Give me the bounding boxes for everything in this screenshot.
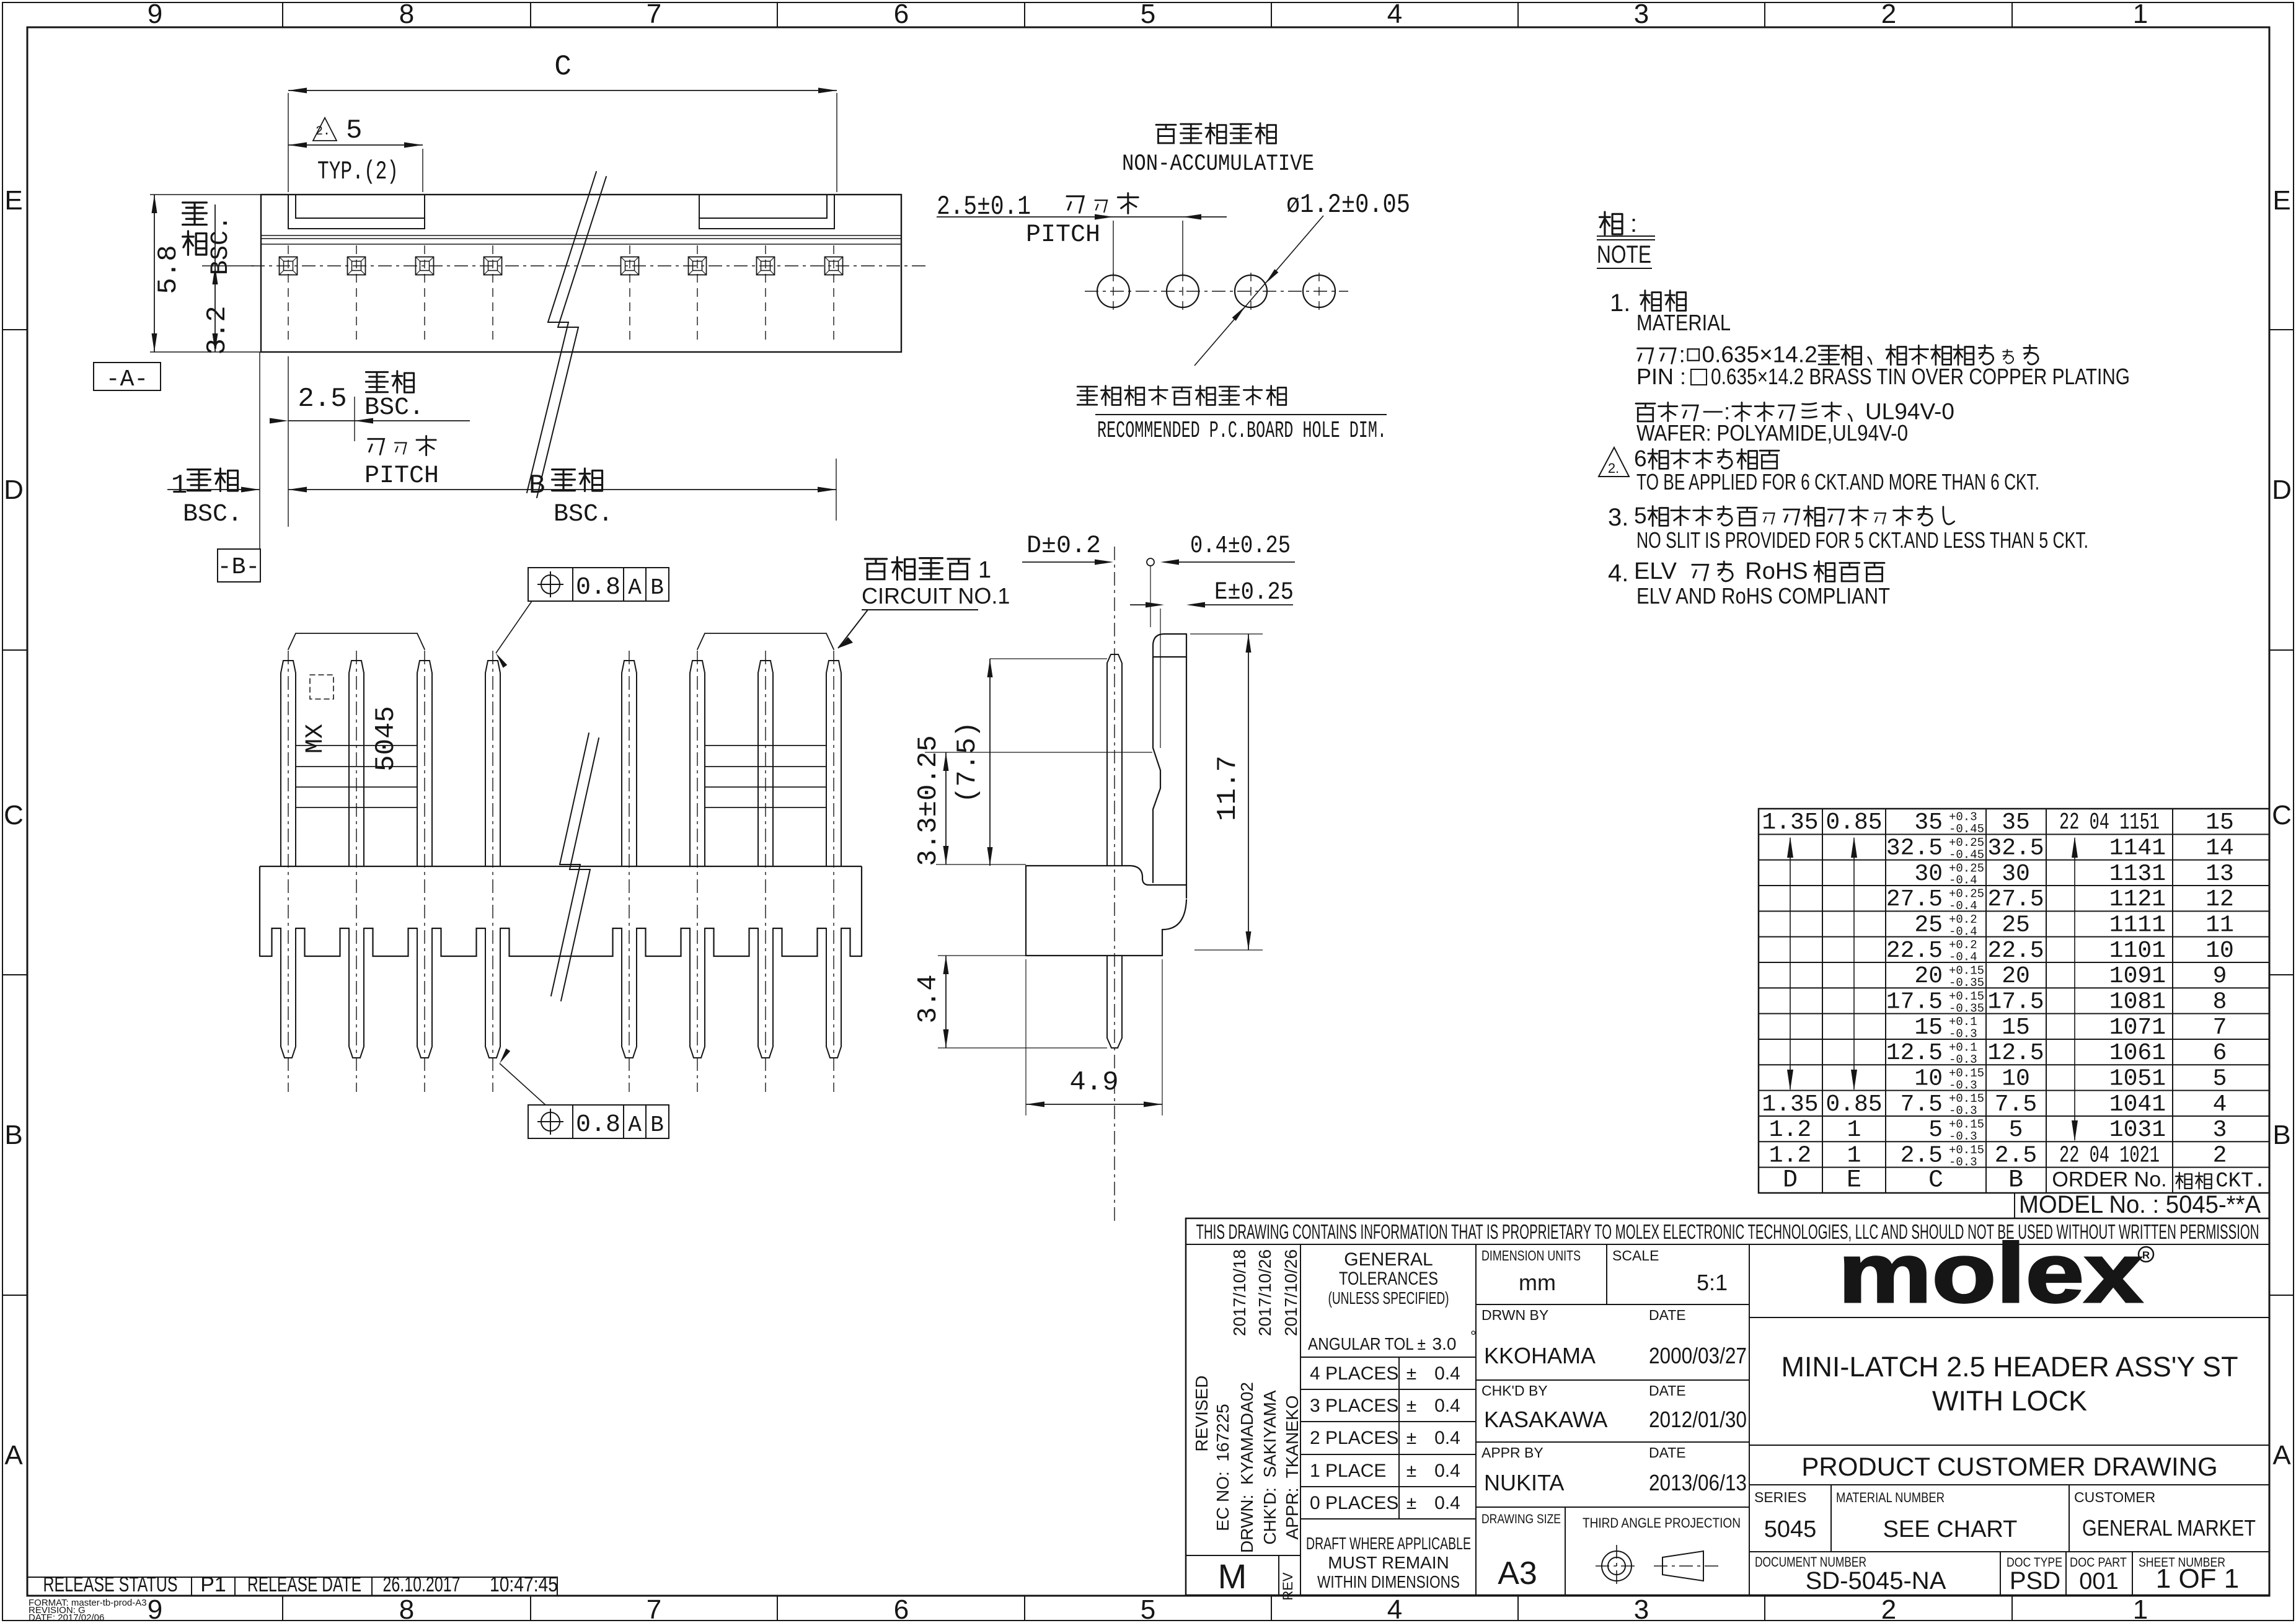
- svg-text:1111: 1111: [2109, 912, 2166, 939]
- svg-text:1071: 1071: [2109, 1014, 2166, 1041]
- svg-text:3.: 3.: [1608, 504, 1628, 531]
- svg-text:DATE: DATE: [1649, 1307, 1686, 1323]
- svg-text:NON-ACCUMULATIVE: NON-ACCUMULATIVE: [1122, 151, 1314, 177]
- svg-text:6: 6: [1634, 446, 1647, 471]
- svg-text:M: M: [1218, 1557, 1247, 1596]
- svg-text:8: 8: [399, 0, 414, 29]
- svg-text::: :: [1630, 210, 1637, 237]
- svg-text:2.5±0.1: 2.5±0.1: [937, 191, 1031, 222]
- svg-text:5: 5: [1634, 503, 1647, 528]
- svg-text:6: 6: [2213, 1040, 2227, 1067]
- svg-text:3 PLACES: 3 PLACES: [1310, 1396, 1398, 1416]
- svg-text:P1: P1: [200, 1573, 226, 1596]
- svg-text:17.5: 17.5: [1987, 989, 2044, 1016]
- svg-text:REVISED: REVISED: [1192, 1376, 1211, 1452]
- svg-text:WITHIN DIMENSIONS: WITHIN DIMENSIONS: [1317, 1572, 1460, 1591]
- svg-text:MATERIAL NUMBER: MATERIAL NUMBER: [1836, 1490, 1945, 1505]
- svg-text:9: 9: [148, 1594, 162, 1623]
- svg-text:-0.4: -0.4: [1949, 951, 1977, 964]
- svg-text:CHK'D BY: CHK'D BY: [1481, 1383, 1548, 1399]
- svg-text:±: ±: [1406, 1461, 1416, 1481]
- svg-text:3.3±0.25: 3.3±0.25: [913, 735, 944, 866]
- svg-text:KASAKAWA: KASAKAWA: [1484, 1407, 1607, 1432]
- svg-text:1 OF 1: 1 OF 1: [2156, 1564, 2240, 1594]
- svg-text:2 PLACES: 2 PLACES: [1310, 1428, 1398, 1448]
- svg-text:DIMENSION UNITS: DIMENSION UNITS: [1481, 1247, 1581, 1264]
- svg-text:B: B: [4, 1120, 22, 1150]
- svg-text:BSC.: BSC.: [183, 501, 242, 529]
- svg-text:DRWN: KYAMADA02: DRWN: KYAMADA02: [1237, 1382, 1256, 1553]
- svg-text:1: 1: [1847, 1117, 1861, 1143]
- svg-text:THIRD ANGLE PROJECTION: THIRD ANGLE PROJECTION: [1583, 1515, 1741, 1531]
- svg-text:APPR: TKANEKO: APPR: TKANEKO: [1283, 1396, 1302, 1540]
- svg-text:PITCH: PITCH: [1026, 221, 1100, 249]
- svg-text:B: B: [650, 575, 664, 600]
- svg-text:2: 2: [1881, 0, 1896, 29]
- svg-text:mm: mm: [1519, 1270, 1556, 1295]
- svg-text:25: 25: [1914, 912, 1943, 939]
- svg-text:6: 6: [894, 1594, 909, 1623]
- svg-text:RoHS: RoHS: [1739, 558, 1814, 584]
- svg-text:30: 30: [1914, 861, 1943, 887]
- svg-text:10:47:45: 10:47:45: [490, 1573, 558, 1596]
- svg-text:4.9: 4.9: [1069, 1067, 1118, 1098]
- svg-text:32.5: 32.5: [1886, 835, 1943, 862]
- svg-text:5045: 5045: [1764, 1516, 1817, 1542]
- svg-text:11: 11: [2205, 912, 2234, 939]
- svg-text:(UNLESS SPECIFIED): (UNLESS SPECIFIED): [1328, 1288, 1449, 1308]
- svg-text:1: 1: [2133, 1594, 2148, 1623]
- svg-text:C: C: [2272, 800, 2292, 830]
- svg-text:-A-: -A-: [106, 366, 148, 393]
- svg-text:7.5: 7.5: [1995, 1091, 2037, 1118]
- svg-text:±: ±: [1406, 1363, 1416, 1384]
- svg-text:ELV: ELV: [1634, 558, 1684, 584]
- svg-text:-0.45: -0.45: [1949, 848, 1984, 861]
- svg-text:2.5: 2.5: [1995, 1143, 2037, 1169]
- svg-text:15: 15: [2205, 809, 2234, 836]
- svg-text:3.2: 3.2: [202, 306, 233, 354]
- svg-text:5: 5: [1141, 0, 1155, 29]
- svg-text:5: 5: [1141, 1594, 1155, 1623]
- svg-text:3: 3: [1634, 1594, 1649, 1623]
- svg-text:3.0: 3.0: [1433, 1334, 1457, 1353]
- svg-text:DRWN BY: DRWN BY: [1481, 1307, 1548, 1323]
- svg-text:MATERIAL: MATERIAL: [1636, 310, 1731, 335]
- svg-text:C: C: [1928, 1167, 1943, 1195]
- svg-text:ORDER No.: ORDER No.: [2052, 1168, 2166, 1192]
- svg-text:0.4: 0.4: [1434, 1493, 1460, 1513]
- svg-text:10: 10: [1914, 1066, 1943, 1093]
- svg-text:ø1.2±0.05: ø1.2±0.05: [1286, 190, 1410, 221]
- svg-text:0.4: 0.4: [1434, 1396, 1460, 1416]
- svg-text:A3: A3: [1498, 1555, 1537, 1591]
- svg-text:0.4: 0.4: [1434, 1363, 1460, 1384]
- svg-text:22 04 1021: 22 04 1021: [2059, 1143, 2160, 1169]
- svg-text:-0.3: -0.3: [1949, 1104, 1977, 1118]
- svg-text:-0.3: -0.3: [1949, 1155, 1977, 1169]
- svg-text:3: 3: [2213, 1117, 2227, 1143]
- svg-text:35: 35: [2002, 809, 2030, 836]
- svg-text:5: 5: [346, 115, 362, 146]
- svg-text:SEE CHART: SEE CHART: [1883, 1516, 2018, 1542]
- svg-text:0.8: 0.8: [576, 574, 620, 602]
- svg-text:1091: 1091: [2109, 963, 2166, 990]
- svg-text:1031: 1031: [2109, 1117, 2166, 1143]
- svg-text:2017/10/26: 2017/10/26: [1281, 1249, 1300, 1336]
- svg-text:GENERAL MARKET: GENERAL MARKET: [2082, 1515, 2256, 1541]
- svg-text:5: 5: [1928, 1117, 1943, 1143]
- svg-text:0.85: 0.85: [1826, 1091, 1882, 1118]
- svg-text:B: B: [529, 470, 545, 501]
- svg-text:27.5: 27.5: [1886, 886, 1943, 913]
- svg-text:RECOMMENDED P.C.BOARD HOLE DIM: RECOMMENDED P.C.BOARD HOLE DIM.: [1097, 418, 1387, 444]
- svg-text:1081: 1081: [2109, 989, 2166, 1016]
- svg-text:2.: 2.: [1608, 460, 1619, 476]
- svg-text:E: E: [2272, 185, 2290, 216]
- svg-text:-0.4: -0.4: [1949, 899, 1977, 913]
- svg-text:20: 20: [2002, 963, 2030, 990]
- svg-text:D: D: [1783, 1167, 1798, 1195]
- svg-text:6: 6: [894, 0, 909, 29]
- svg-text:2017/10/18: 2017/10/18: [1230, 1249, 1249, 1336]
- svg-text:20: 20: [1914, 963, 1943, 990]
- svg-text:3: 3: [1634, 0, 1649, 29]
- svg-text:2013/06/13: 2013/06/13: [1649, 1470, 1747, 1495]
- svg-text:C: C: [554, 51, 572, 83]
- svg-text:D±0.2: D±0.2: [1027, 532, 1101, 560]
- svg-text:1: 1: [1847, 1143, 1861, 1169]
- svg-text:3.4: 3.4: [913, 974, 944, 1023]
- svg-text:DRAFT WHERE APPLICABLE: DRAFT WHERE APPLICABLE: [1306, 1534, 1471, 1553]
- svg-text:PRODUCT CUSTOMER DRAWING: PRODUCT CUSTOMER DRAWING: [1801, 1452, 2217, 1481]
- svg-text:-0.35: -0.35: [1949, 976, 1984, 990]
- svg-text:±: ±: [1406, 1493, 1416, 1513]
- svg-text:2012/01/30: 2012/01/30: [1649, 1407, 1747, 1432]
- svg-text:1 PLACE: 1 PLACE: [1310, 1461, 1386, 1481]
- svg-text:4 PLACES: 4 PLACES: [1310, 1363, 1398, 1384]
- svg-text:molex: molex: [1838, 1226, 2142, 1320]
- svg-text:15: 15: [1914, 1014, 1943, 1041]
- svg-text:APPR BY: APPR BY: [1481, 1445, 1543, 1461]
- svg-text:2017/10/26: 2017/10/26: [1255, 1249, 1274, 1336]
- svg-text:MUST REMAIN: MUST REMAIN: [1328, 1553, 1449, 1572]
- svg-text:1.2: 1.2: [1769, 1117, 1811, 1143]
- svg-text:35: 35: [1914, 809, 1943, 836]
- svg-text:D: D: [4, 475, 24, 505]
- svg-text:±: ±: [1406, 1396, 1416, 1416]
- svg-text:A: A: [628, 1112, 642, 1138]
- svg-text:PSD: PSD: [2010, 1567, 2060, 1594]
- svg-text:MODEL No. : 5045-**A: MODEL No. : 5045-**A: [2019, 1191, 2261, 1218]
- svg-text:0.4±0.25: 0.4±0.25: [1190, 532, 1291, 560]
- svg-text:4: 4: [1387, 0, 1402, 29]
- svg-text:RELEASE STATUS: RELEASE STATUS: [43, 1573, 178, 1596]
- svg-text:1: 1: [978, 557, 991, 583]
- svg-text:12: 12: [2205, 886, 2234, 913]
- svg-text:ANGULAR TOL ±: ANGULAR TOL ±: [1308, 1334, 1426, 1353]
- svg-text:BSC.: BSC.: [364, 394, 424, 422]
- svg-text:1141: 1141: [2109, 835, 2166, 862]
- svg-text:-0.4: -0.4: [1949, 925, 1977, 938]
- svg-text:10: 10: [2002, 1066, 2030, 1093]
- svg-text:ELV AND RoHS COMPLIANT: ELV AND RoHS COMPLIANT: [1636, 583, 1890, 609]
- svg-text:0.85: 0.85: [1826, 809, 1882, 836]
- svg-text:1.35: 1.35: [1762, 1091, 1818, 1118]
- svg-text:A: A: [628, 575, 642, 600]
- svg-text:1121: 1121: [2109, 886, 2166, 913]
- svg-text:REV: REV: [1280, 1572, 1296, 1601]
- svg-text:-0.3: -0.3: [1949, 1078, 1977, 1092]
- svg-text:1101: 1101: [2109, 938, 2166, 964]
- svg-text:0.635×14.2 BRASS TIN OVER COPP: 0.635×14.2 BRASS TIN OVER COPPER PLATING: [1711, 364, 2130, 389]
- svg-text:30: 30: [2002, 861, 2030, 887]
- svg-text:DATE: 2017/02/06: DATE: 2017/02/06: [29, 1612, 104, 1623]
- svg-text:26.10.2017: 26.10.2017: [383, 1573, 461, 1596]
- svg-text:17.5: 17.5: [1886, 989, 1943, 1016]
- svg-text:D: D: [2272, 475, 2292, 505]
- svg-text:1: 1: [171, 470, 187, 501]
- svg-text:001: 001: [2079, 1568, 2118, 1594]
- svg-text:0.8: 0.8: [576, 1111, 620, 1139]
- svg-text:B: B: [2008, 1167, 2023, 1195]
- svg-text:0 PLACES: 0 PLACES: [1310, 1493, 1398, 1513]
- svg-text:R: R: [2142, 1249, 2150, 1261]
- svg-text:E: E: [1847, 1167, 1861, 1195]
- svg-text:CUSTOMER: CUSTOMER: [2074, 1489, 2155, 1505]
- svg-text:DATE: DATE: [1649, 1445, 1686, 1461]
- svg-text:SERIES: SERIES: [1754, 1489, 1806, 1505]
- svg-text:B: B: [2272, 1120, 2290, 1150]
- svg-text:11.7: 11.7: [1212, 755, 1243, 821]
- svg-text:B: B: [650, 1112, 664, 1138]
- svg-text:5:1: 5:1: [1697, 1270, 1728, 1295]
- svg-text:WAFER: POLYAMIDE,UL94V-0: WAFER: POLYAMIDE,UL94V-0: [1636, 420, 1908, 446]
- svg-text:KKOHAMA: KKOHAMA: [1484, 1343, 1596, 1368]
- svg-text:-0.3: -0.3: [1949, 1130, 1977, 1143]
- svg-text:SCALE: SCALE: [1612, 1247, 1659, 1264]
- svg-text:BSC.: BSC.: [554, 501, 613, 529]
- svg-text:MX: MX: [302, 724, 330, 754]
- svg-text:RELEASE DATE: RELEASE DATE: [247, 1573, 361, 1596]
- svg-text:7: 7: [647, 1594, 661, 1623]
- svg-text:E±0.25: E±0.25: [1214, 579, 1294, 607]
- svg-text:(7.5): (7.5): [952, 721, 983, 803]
- svg-text:5.8: 5.8: [153, 245, 184, 294]
- svg-text:TOLERANCES: TOLERANCES: [1339, 1269, 1438, 1289]
- svg-text:2.5: 2.5: [1901, 1143, 1943, 1169]
- svg-text:4.: 4.: [1608, 560, 1628, 587]
- svg-text:2000/03/27: 2000/03/27: [1649, 1343, 1747, 1368]
- svg-text:TYP.(2): TYP.(2): [317, 157, 399, 187]
- svg-text:2.5: 2.5: [298, 384, 347, 415]
- svg-text:7: 7: [647, 0, 661, 29]
- svg-text:-0.35: -0.35: [1949, 1001, 1984, 1015]
- svg-text:1.: 1.: [1610, 289, 1630, 317]
- svg-text:A: A: [4, 1440, 23, 1471]
- svg-text:7: 7: [2213, 1014, 2227, 1041]
- svg-text:EC NO: 167225: EC NO: 167225: [1213, 1404, 1232, 1531]
- svg-text:DRAWING SIZE: DRAWING SIZE: [1481, 1512, 1561, 1526]
- svg-text:5: 5: [2009, 1117, 2023, 1143]
- svg-text:±: ±: [1406, 1428, 1416, 1448]
- svg-text:0.4: 0.4: [1434, 1461, 1460, 1481]
- svg-text:10: 10: [2205, 938, 2234, 964]
- svg-text:8: 8: [399, 1594, 414, 1623]
- svg-text:-B-: -B-: [218, 554, 260, 581]
- svg-text:15: 15: [2002, 1014, 2030, 1041]
- svg-text:°: °: [1470, 1328, 1477, 1345]
- svg-text:A: A: [2272, 1440, 2291, 1471]
- svg-text:4: 4: [2213, 1091, 2227, 1118]
- svg-text:12.5: 12.5: [1987, 1040, 2044, 1067]
- svg-text:1.35: 1.35: [1762, 809, 1818, 836]
- svg-text:1041: 1041: [2109, 1091, 2166, 1118]
- svg-text:5045: 5045: [371, 706, 402, 772]
- svg-text:-0.3: -0.3: [1949, 1027, 1977, 1041]
- svg-text:13: 13: [2205, 861, 2234, 887]
- svg-text:2: 2: [2213, 1143, 2227, 1169]
- svg-text:4: 4: [1387, 1594, 1402, 1623]
- svg-text:1131: 1131: [2109, 861, 2166, 887]
- svg-text:E: E: [4, 185, 22, 216]
- svg-text:32.5: 32.5: [1987, 835, 2044, 862]
- svg-text:12.5: 12.5: [1886, 1040, 1943, 1067]
- svg-text:1.2: 1.2: [1769, 1143, 1811, 1169]
- svg-text:-0.45: -0.45: [1949, 822, 1984, 836]
- svg-text:27.5: 27.5: [1987, 886, 2044, 913]
- svg-text:GENERAL: GENERAL: [1344, 1249, 1433, 1270]
- svg-text:25: 25: [2002, 912, 2030, 939]
- svg-text:SD-5045-NA: SD-5045-NA: [1806, 1567, 1946, 1594]
- svg-text:NOTE: NOTE: [1597, 241, 1651, 268]
- svg-text:DATE: DATE: [1649, 1383, 1686, 1399]
- svg-text:-0.4: -0.4: [1949, 874, 1977, 887]
- svg-text:9: 9: [148, 0, 162, 29]
- svg-text:5: 5: [2213, 1066, 2227, 1093]
- svg-text:NO SLIT IS PROVIDED FOR 5 CKT.: NO SLIT IS PROVIDED FOR 5 CKT.AND LESS T…: [1636, 527, 2088, 553]
- svg-text:1: 1: [2133, 0, 2148, 29]
- svg-text:1051: 1051: [2109, 1066, 2166, 1093]
- svg-text:PITCH: PITCH: [364, 462, 439, 490]
- svg-text:-0.3: -0.3: [1949, 1053, 1977, 1067]
- svg-text:CHK'D: SAKIYAMA: CHK'D: SAKIYAMA: [1260, 1390, 1279, 1544]
- svg-text:TO BE APPLIED FOR 6 CKT.AND MO: TO BE APPLIED FOR 6 CKT.AND MORE THAN 6 …: [1636, 469, 2039, 495]
- svg-text:14: 14: [2205, 835, 2234, 862]
- svg-text:C: C: [4, 800, 24, 830]
- svg-text:22.5: 22.5: [1987, 938, 2044, 964]
- svg-text:PIN :: PIN :: [1636, 364, 1692, 389]
- svg-text:22.5: 22.5: [1886, 938, 1943, 964]
- svg-text:CIRCUIT NO.1: CIRCUIT NO.1: [862, 583, 1010, 609]
- svg-text:2: 2: [1881, 1594, 1896, 1623]
- svg-text:MINI-LATCH 2.5 HEADER ASS'Y ST: MINI-LATCH 2.5 HEADER ASS'Y ST: [1781, 1351, 2238, 1383]
- svg-text:7.5: 7.5: [1901, 1091, 1943, 1118]
- svg-text:8: 8: [2213, 989, 2227, 1016]
- svg-text:0.4: 0.4: [1434, 1428, 1460, 1448]
- svg-text:CKT.: CKT.: [2215, 1170, 2266, 1194]
- svg-text:2.: 2.: [316, 125, 330, 139]
- svg-text:1061: 1061: [2109, 1040, 2166, 1067]
- svg-text:WITH LOCK: WITH LOCK: [1932, 1385, 2087, 1417]
- svg-text:DOC PART: DOC PART: [2070, 1555, 2127, 1570]
- svg-text:22 04 1151: 22 04 1151: [2059, 809, 2160, 836]
- svg-text:NUKITA: NUKITA: [1484, 1470, 1564, 1495]
- svg-text:9: 9: [2213, 963, 2227, 990]
